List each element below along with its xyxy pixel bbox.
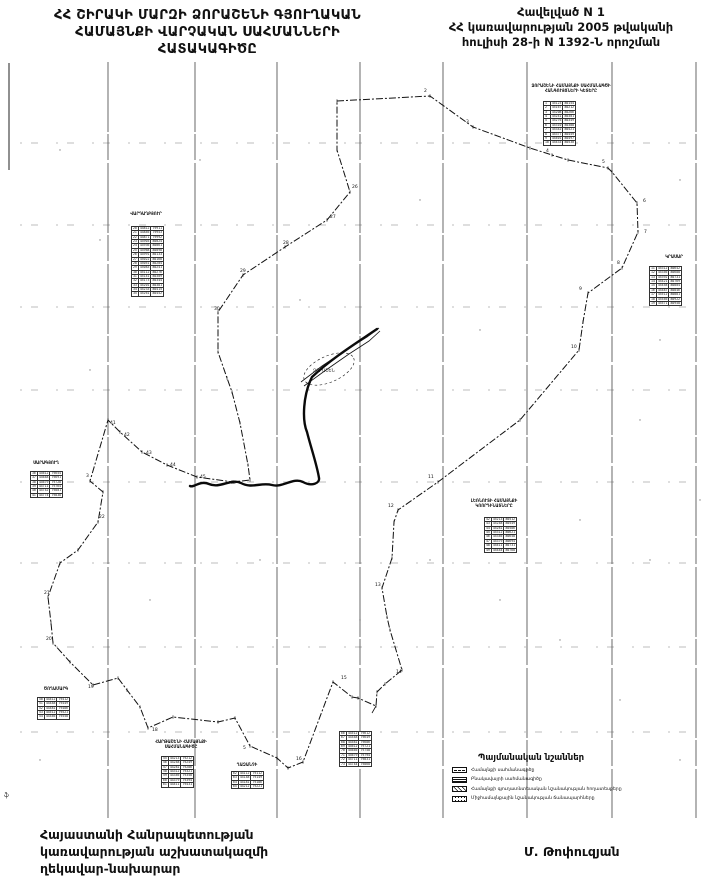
scan-noise-dot <box>149 599 150 600</box>
boundary-point-number: 5 <box>602 159 605 165</box>
boundary-point-number: 10 <box>571 344 577 350</box>
settlement-outline <box>372 706 376 713</box>
scan-noise-dot <box>359 619 360 620</box>
boundary-point-number: 19 <box>88 684 94 690</box>
legend-items: Համայնքի սահմանագիծըԲնակավայրի սահմանագի… <box>452 767 612 802</box>
coordinate-cell: 80452 <box>151 292 164 296</box>
scan-noise-dot <box>259 559 260 560</box>
coordinate-cell: 73 <box>340 762 347 766</box>
boundary-point-number: 27 <box>330 214 336 220</box>
coordinate-table-header: ՁՈՐԱՇԵՆԻ ՀԱՄԱՅՆՔԻ ՍԱՀՄԱՆԱԳԾԻՀԱՆԳՈՒՅՑՆԵՐԻ… <box>525 84 617 94</box>
boundary-point-number: 42 <box>124 432 130 438</box>
scan-noise-dot <box>39 759 40 760</box>
coordinate-table-row: 734474479868 <box>340 762 372 766</box>
boundary-point-number: 45 <box>200 474 206 480</box>
dotted-swatch <box>452 796 467 802</box>
coordinate-cell: 35 <box>132 292 139 296</box>
scan-noise-dot <box>659 339 660 340</box>
boundary-point-number: 14 <box>396 669 402 675</box>
coordinate-cell: 45433 <box>550 141 563 145</box>
scan-noise-dot <box>679 179 680 180</box>
scan-noise-dot <box>59 149 60 150</box>
legend-item: Համայնքի սահմանագիծը <box>452 767 612 773</box>
boundary-point-number: 13 <box>375 582 381 588</box>
coordinate-table-row: 494544480768 <box>485 548 517 552</box>
boundary-point-number: 12 <box>388 503 394 509</box>
boundary-point-number: 29 <box>240 268 246 274</box>
boundary-point-number: 8 <box>617 260 620 266</box>
boundary-point-number: 30 <box>214 306 220 312</box>
legend-title: Պայմանական նշաններ <box>478 753 612 763</box>
village-label: ՁՈՐԱՇԵՆ <box>313 368 335 373</box>
coordinate-table: 1451238015424516780212345208802664452418… <box>543 101 576 146</box>
scan-noise-dot <box>299 299 300 300</box>
boundary-point-number: 18 <box>152 727 158 733</box>
boundary-point-number: 22 <box>99 514 105 520</box>
coordinate-cell: 79431 <box>181 783 194 787</box>
boundary-point-number: 5 <box>243 745 246 751</box>
boundary-point-number: 6 <box>643 198 646 204</box>
boundary-point-number: 43 <box>146 450 152 456</box>
coordinate-cell: 65 <box>232 785 239 789</box>
legend-item: Բնակավայրի սահմանագիծը <box>452 777 612 783</box>
footer-line3: ղեկավար-նախարար <box>40 860 268 877</box>
scan-noise-dot <box>649 559 650 560</box>
scan-edge-mark: ֆ <box>4 792 9 799</box>
dense-lines-swatch <box>452 777 467 783</box>
coordinate-table: 6644512796126744548796496844581796866944… <box>339 731 372 767</box>
scan-noise-dot <box>419 199 420 200</box>
coordinate-cell: 61 <box>162 783 169 787</box>
footer-line1: Հայաստանի Հանրապետության <box>40 826 268 843</box>
boundary-point-number: 46 <box>230 480 236 486</box>
legend-item: Միջհամայնքային նշանակության ճանապարհները <box>452 796 612 802</box>
coordinate-table-header: ՎԱՐԴԱՂԲՅՈՒՐ <box>122 212 170 217</box>
coordinate-cell: 45261 <box>138 292 151 296</box>
coordinate-cell: 45444 <box>491 548 504 552</box>
coordinate-table-row: 414477479838 <box>31 493 63 497</box>
coordinate-cell: 44411 <box>168 783 181 787</box>
scan-noise-dot <box>579 519 580 520</box>
scan-noise-dot <box>479 329 480 330</box>
settlement-outline <box>304 331 380 386</box>
boundary-point-number: 9 <box>579 286 582 292</box>
coordinate-cell: 44546 <box>44 715 57 719</box>
boundary-point-number: 41 <box>110 420 116 426</box>
hatch-swatch <box>452 786 467 792</box>
coordinate-cell: 44744 <box>346 762 359 766</box>
legend: Պայմանական նշաններ Համայնքի սահմանագիծըԲ… <box>452 753 612 802</box>
scan-noise-dot <box>199 159 200 160</box>
scan-noise-dot <box>99 239 100 240</box>
scan-noise-dot <box>499 599 500 600</box>
scanned-map-page: { "page": { "title_lines": [ "ՀՀ ՇԻՐԱԿԻ … <box>0 0 711 875</box>
coordinate-cell: 79868 <box>359 762 372 766</box>
boundary-point-number: 26 <box>352 184 358 190</box>
coordinate-cell: 80530 <box>563 141 576 145</box>
coordinate-cell: 44774 <box>37 493 50 497</box>
legend-item-label: Բնակավայրի սահմանագիծը <box>471 777 542 782</box>
scan-noise-dot <box>559 639 560 640</box>
footer-signatory-title: Հայաստանի Հանրապետության կառավարության ա… <box>40 826 268 877</box>
coordinate-cell: 41 <box>31 493 38 497</box>
boundary-point-number: 15 <box>341 675 347 681</box>
coordinate-table-header: ԿՐԱՍԱՐ <box>648 255 700 260</box>
coordinate-table-header: ՍԱՐԱԳՅՈՒՂ <box>24 461 68 466</box>
coordinate-table-row: 354526180452 <box>132 292 164 296</box>
coordinate-table-header: ԼԵՌՆՈՒՏԻ ՀԱՄԱՅՆՔԻԿՈՈՐԴԻՆԱՏՆԵՐԸ <box>452 499 536 509</box>
coordinate-table: 5544213792125644248792495744281792865844… <box>161 756 194 788</box>
boundary-point-number: 21 <box>44 590 50 596</box>
boundary-point-number: 2 <box>424 88 427 94</box>
coordinate-table-row: 104543380530 <box>544 141 576 145</box>
coordinate-table: 6244112791126344148791496444181791866544… <box>231 771 264 789</box>
boundary-point-number: 20 <box>46 636 52 642</box>
coordinate-cell: 80768 <box>504 548 517 552</box>
boundary-point-number: 3 <box>466 119 469 125</box>
coordinate-cell: 79221 <box>251 785 264 789</box>
boundary-point-number: 44 <box>170 462 176 468</box>
coordinate-table-header: ՀԱՐԹԱՇԵՆԻ ՀԱՄԱՅՆՔԻՍԱՀՄԱՆԱԳԻԾԸ <box>152 740 210 750</box>
signature-name: Մ. Թոփուզյան <box>524 844 620 859</box>
legend-item-label: Համայնքի սահմանագիծը <box>471 768 534 773</box>
boundary-point-number: 16 <box>296 756 302 762</box>
coordinate-table-row: 654421279221 <box>232 785 264 789</box>
boundary-point-number: 28 <box>283 240 289 246</box>
coordinate-table: 2044812799112144846799532244871799922344… <box>131 226 164 297</box>
coordinate-table-header: ՂԱԶԱՆՉԻ <box>226 763 268 768</box>
coordinate-cell: 49 <box>485 548 492 552</box>
coordinate-cell: 19 <box>650 301 657 305</box>
scan-noise-dot <box>699 499 700 500</box>
coordinate-table: 4245213805124345248805494445281805864545… <box>484 517 517 553</box>
coordinate-table: 5044412794125144448794495244481794865344… <box>37 697 70 720</box>
scan-noise-dot <box>89 369 90 370</box>
coordinate-table-header: ԾՈՂԱՄԱՐԳ <box>36 687 76 692</box>
boundary-point-number: 7 <box>644 229 647 235</box>
coordinate-cell: 45571 <box>656 301 669 305</box>
coordinate-table-row: 614441179431 <box>162 783 194 787</box>
coordinate-cell: 54 <box>38 715 45 719</box>
coordinate-table-row: 194557180958 <box>650 301 682 305</box>
scan-noise-dot <box>429 559 430 560</box>
legend-item-label: Համայնքի գյուղատնտեսական նշանակության հո… <box>471 787 622 792</box>
community-boundary-line <box>48 96 638 768</box>
dashdot-line-swatch <box>452 767 467 773</box>
boundary-point-number: 3 <box>86 473 89 479</box>
boundary-point-number: 11 <box>428 474 434 480</box>
scan-noise-dot <box>619 699 620 700</box>
coordinate-table-row: 544454679558 <box>38 715 70 719</box>
footer-line2: կառավարության աշխատակազմի <box>40 843 268 860</box>
coordinate-cell: 80958 <box>669 301 682 305</box>
legend-item: Համայնքի գյուղատնտեսական նշանակության հո… <box>452 786 612 792</box>
coordinate-table: 3644612796543744648796913844679797283944… <box>30 471 63 498</box>
coordinate-cell: 79838 <box>50 493 63 497</box>
coordinate-table: 1145312806421245356806881345392807311445… <box>649 266 682 306</box>
coordinate-cell: 79558 <box>57 715 70 719</box>
scan-noise-dot <box>679 759 680 760</box>
coordinate-cell: 44212 <box>238 785 251 789</box>
scan-noise-dot <box>639 419 640 420</box>
legend-item-label: Միջհամայնքային նշանակության ճանապարհները <box>471 796 595 801</box>
coordinate-cell: 10 <box>544 141 551 145</box>
boundary-point-number: 4 <box>546 148 549 154</box>
